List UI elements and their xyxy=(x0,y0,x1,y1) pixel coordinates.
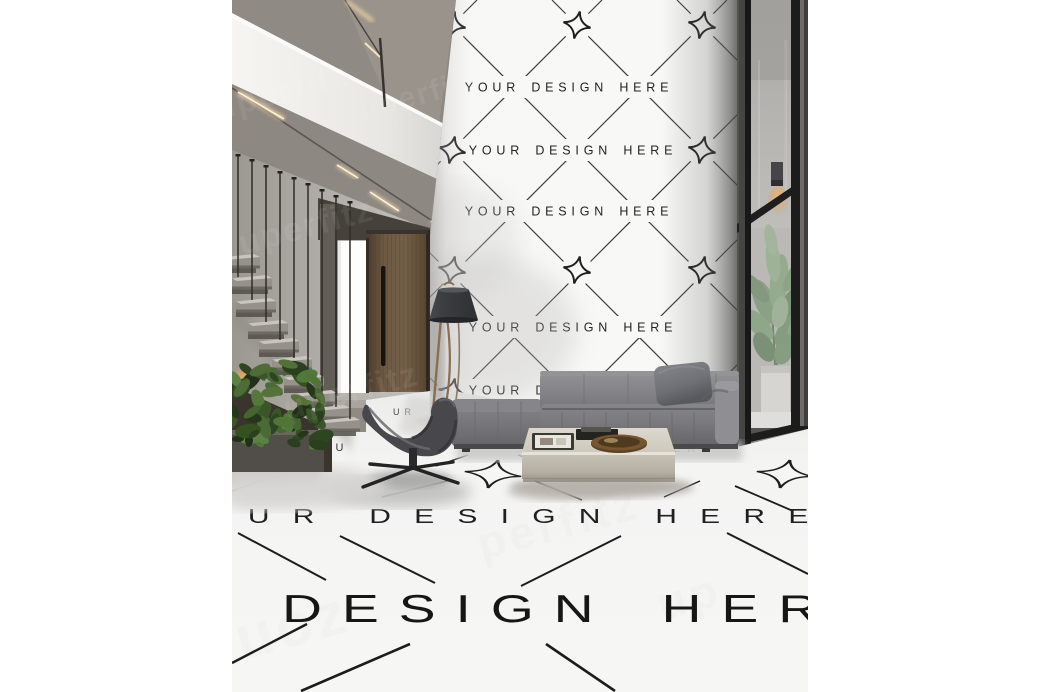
svg-text:YOUR DESIGN HERE: YOUR DESIGN HERE xyxy=(465,81,674,95)
svg-text:YOUR DESIGN HERE: YOUR DESIGN HERE xyxy=(469,144,678,158)
svg-text:DESIGN HERE: DESIGN HERE xyxy=(282,588,808,631)
